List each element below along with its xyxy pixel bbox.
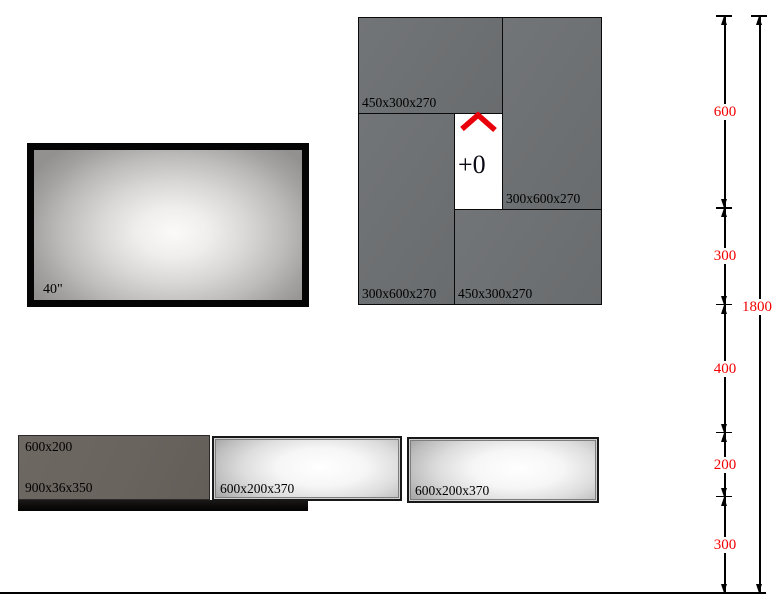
dim-label: 600 bbox=[713, 104, 738, 120]
dim-label: 1800 bbox=[741, 299, 773, 315]
dim-label: 200 bbox=[713, 457, 738, 473]
dim-arrow-up-icon bbox=[721, 305, 727, 314]
dim-label: 400 bbox=[713, 361, 738, 377]
dim-arrow-up-icon bbox=[721, 497, 727, 506]
dim-label: 300 bbox=[713, 537, 738, 553]
dimension-chain: 6003004002003001800 bbox=[0, 0, 777, 606]
dim-label: 300 bbox=[713, 248, 738, 264]
furniture-elevation-drawing: 40" 450x300x270 300x600x270 300x600x270 … bbox=[0, 0, 777, 606]
dim-arrow-up-icon bbox=[721, 433, 727, 442]
dim-arrow-up-icon bbox=[721, 16, 727, 25]
dim-arrow-up-icon bbox=[756, 16, 762, 25]
dim-arrow-up-icon bbox=[721, 208, 727, 217]
floor-line bbox=[0, 592, 766, 594]
